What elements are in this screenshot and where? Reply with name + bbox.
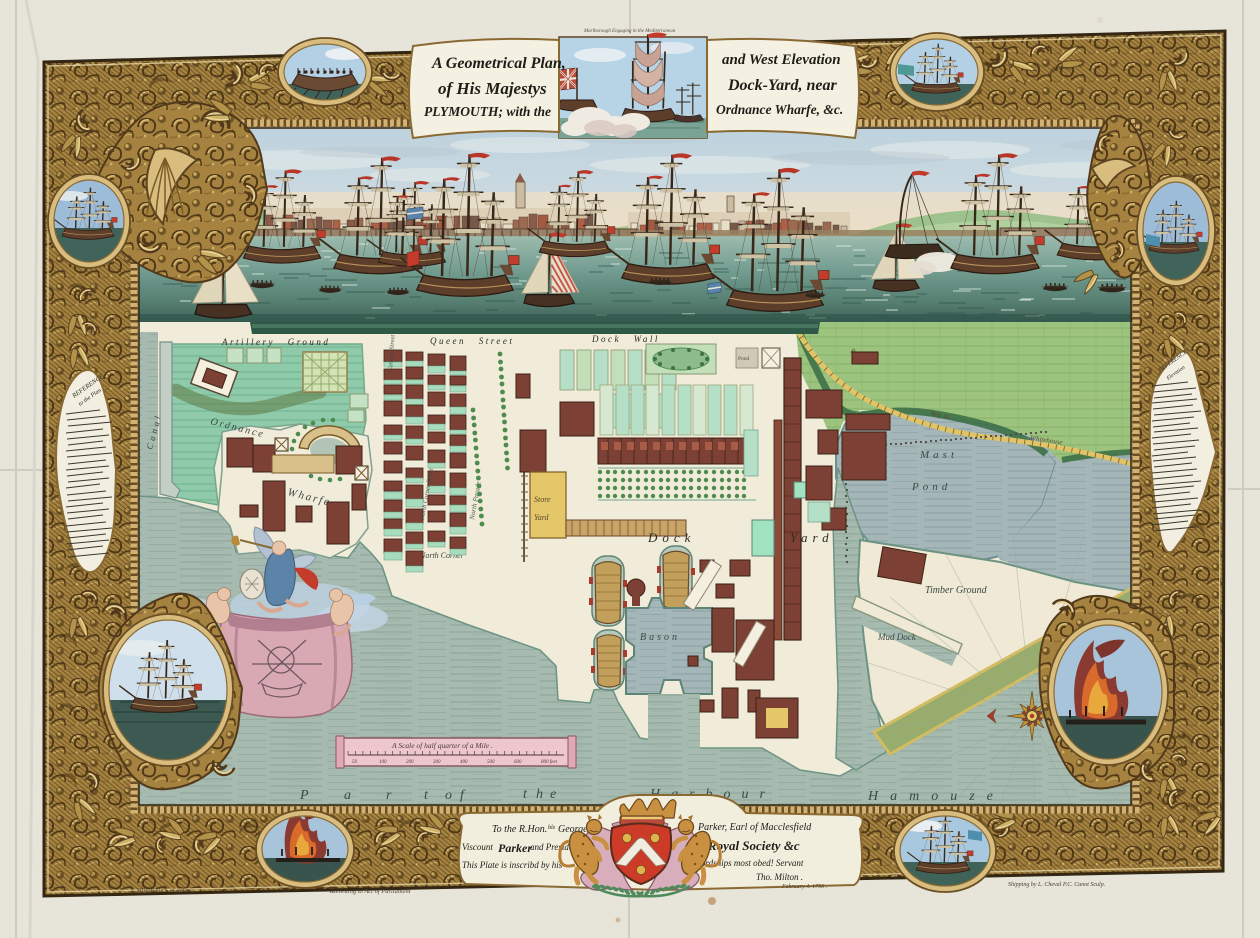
svg-text:This Plate is inscribd by his: This Plate is inscribd by his (462, 860, 563, 870)
svg-text:ble: ble (548, 825, 556, 831)
svg-text:T. Milton Surv. et delin.: T. Milton Surv. et delin. (130, 887, 191, 894)
svg-text:P: P (299, 788, 309, 803)
svg-text:o: o (445, 788, 452, 803)
svg-text:Mud Dock: Mud Dock (877, 632, 917, 642)
svg-text:Parker, Earl of Macclesfield: Parker, Earl of Macclesfield (697, 822, 812, 833)
svg-text:200: 200 (406, 760, 414, 765)
svg-text:Marlborough Engaging in the Me: Marlborough Engaging in the Mediterranea… (583, 29, 676, 34)
svg-text:100: 100 (379, 760, 387, 765)
svg-text:A Geometrical Plan,: A Geometrical Plan, (431, 55, 566, 72)
svg-text:of His Majestys: of His Majestys (438, 79, 547, 98)
svg-text:Viscount: Viscount (462, 842, 493, 852)
svg-text:400: 400 (460, 760, 468, 765)
svg-text:A Scale of half quarter of a M: A Scale of half quarter of a Mile . (391, 741, 493, 750)
svg-text:500: 500 (487, 760, 495, 765)
svg-text:Store: Store (534, 495, 551, 504)
svg-text:Dock: Dock (647, 530, 695, 545)
svg-text:Hamouze: Hamouze (867, 789, 1005, 804)
svg-text:800 feet: 800 feet (541, 760, 558, 765)
svg-text:Queen Street: Queen Street (430, 336, 514, 346)
svg-text:Bason: Bason (640, 632, 680, 643)
svg-text:Yard: Yard (534, 513, 550, 522)
svg-text:Yard: Yard (790, 530, 834, 545)
svg-text:Dock-Yard, near: Dock-Yard, near (727, 77, 838, 94)
svg-text:Artillery Ground: Artillery Ground (221, 337, 330, 347)
svg-text:300: 300 (433, 760, 441, 765)
svg-text:50: 50 (352, 760, 358, 765)
svg-text:Parker: Parker (498, 841, 532, 855)
svg-text:Shipping by L. Cheval P.C. Ca: Shipping by L. Cheval P.C. Canot Sculp. (1008, 882, 1105, 888)
svg-text:e: e (550, 787, 556, 802)
svg-text:a: a (344, 788, 351, 803)
svg-text:h: h (536, 787, 543, 802)
svg-text:Mast: Mast (919, 449, 958, 461)
svg-text:Timber Ground: Timber Ground (925, 585, 988, 596)
svg-text:according to Act of Parliament: according to Act of Parliament (330, 888, 411, 895)
svg-text:Pond: Pond (911, 481, 951, 493)
svg-text:February 4. 1756 .: February 4. 1756 . (781, 883, 827, 890)
svg-text:and West Elevation: and West Elevation (722, 52, 841, 68)
svg-text:Tho. Milton .: Tho. Milton . (756, 872, 803, 882)
svg-text:600: 600 (514, 760, 522, 765)
svg-text:Ordnance Wharfe, &c.: Ordnance Wharfe, &c. (716, 102, 843, 117)
svg-text:Dock Wall: Dock Wall (591, 334, 660, 344)
svg-text:Pond: Pond (738, 356, 750, 362)
svg-text:PLYMOUTH; with the: PLYMOUTH; with the (424, 104, 551, 119)
svg-text:To the R.Hon.: To the R.Hon. (492, 824, 547, 835)
svg-text:r: r (386, 788, 392, 803)
